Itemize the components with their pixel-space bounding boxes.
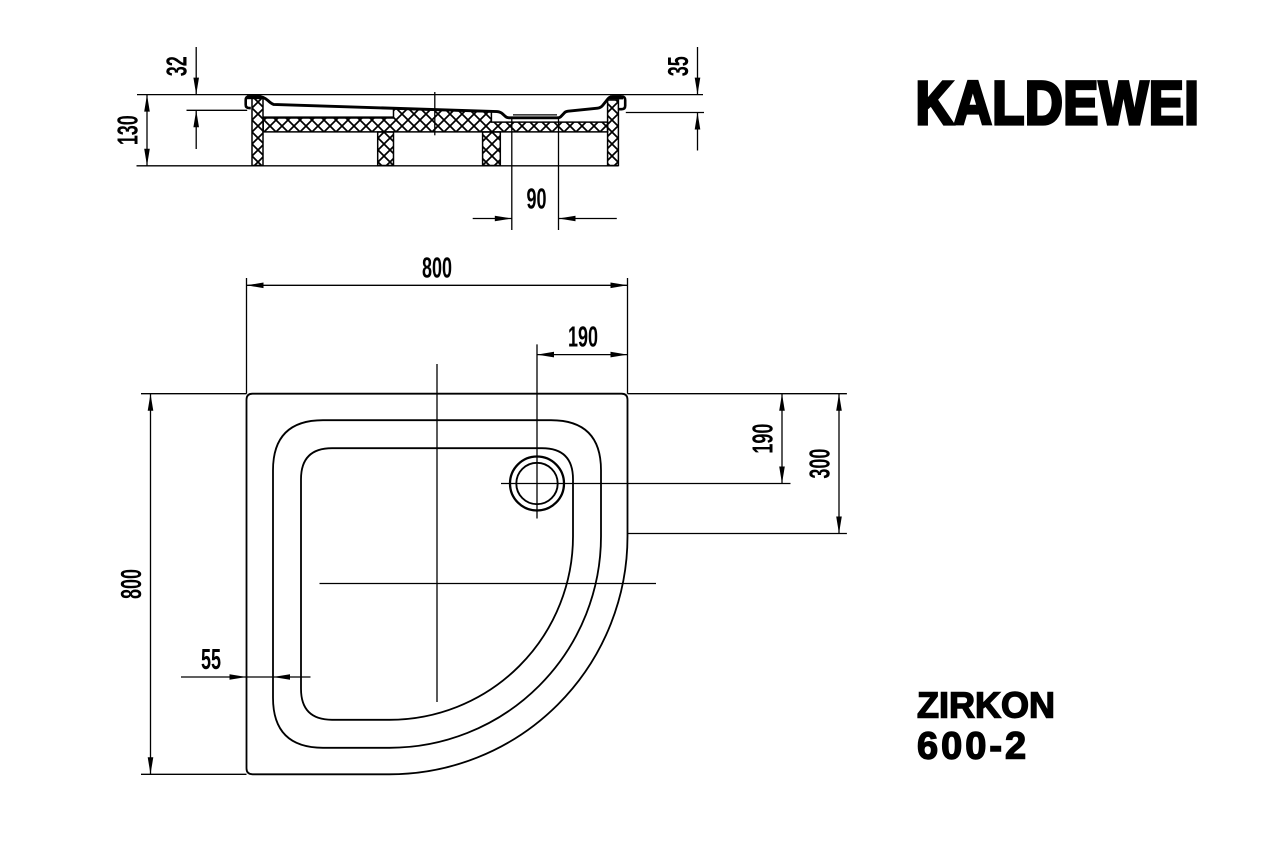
svg-text:90: 90 [527,183,547,215]
svg-text:300: 300 [804,449,836,479]
svg-text:35: 35 [663,56,695,76]
svg-text:190: 190 [747,424,779,454]
svg-text:800: 800 [422,252,452,284]
svg-text:32: 32 [161,56,193,76]
svg-text:KALDEWEI: KALDEWEI [916,69,1200,138]
svg-text:130: 130 [112,115,144,145]
svg-text:55: 55 [201,644,221,676]
svg-text:ZIRKON: ZIRKON [917,685,1055,726]
svg-text:190: 190 [568,321,598,353]
svg-text:800: 800 [116,569,148,599]
svg-text:600-2: 600-2 [917,725,1029,767]
